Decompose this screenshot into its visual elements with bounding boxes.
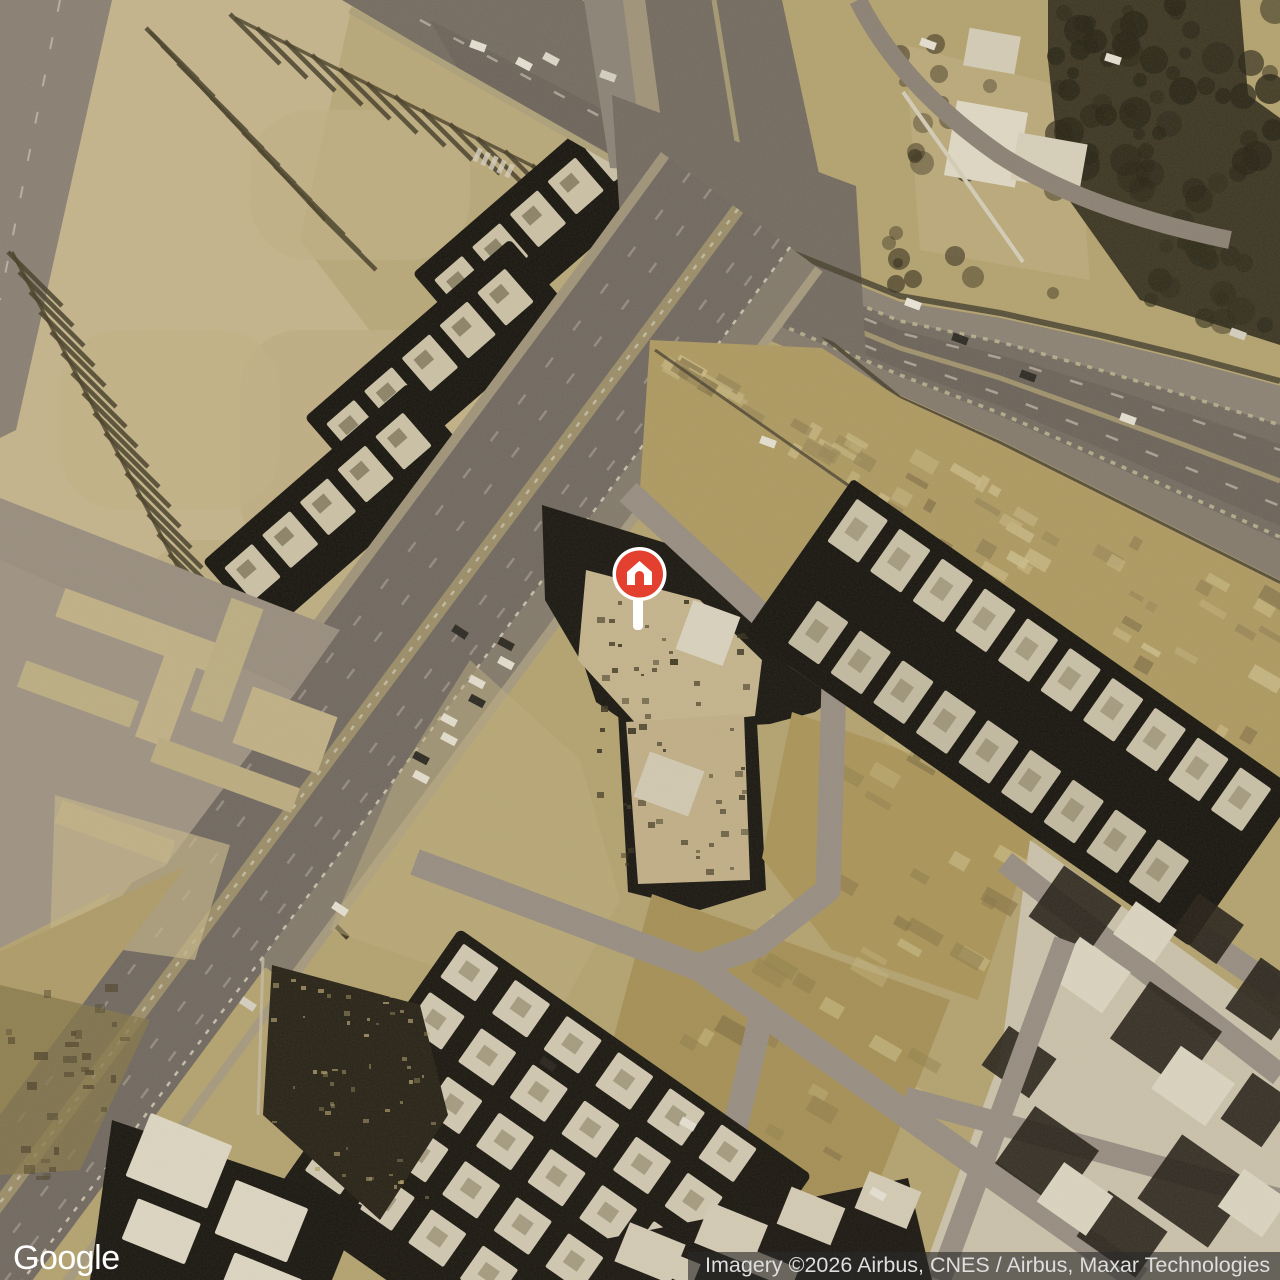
svg-text:Imagery ©2026 Airbus, CNES / A: Imagery ©2026 Airbus, CNES / Airbus, Max…	[705, 1253, 1270, 1277]
svg-text:Google: Google	[13, 1239, 120, 1277]
